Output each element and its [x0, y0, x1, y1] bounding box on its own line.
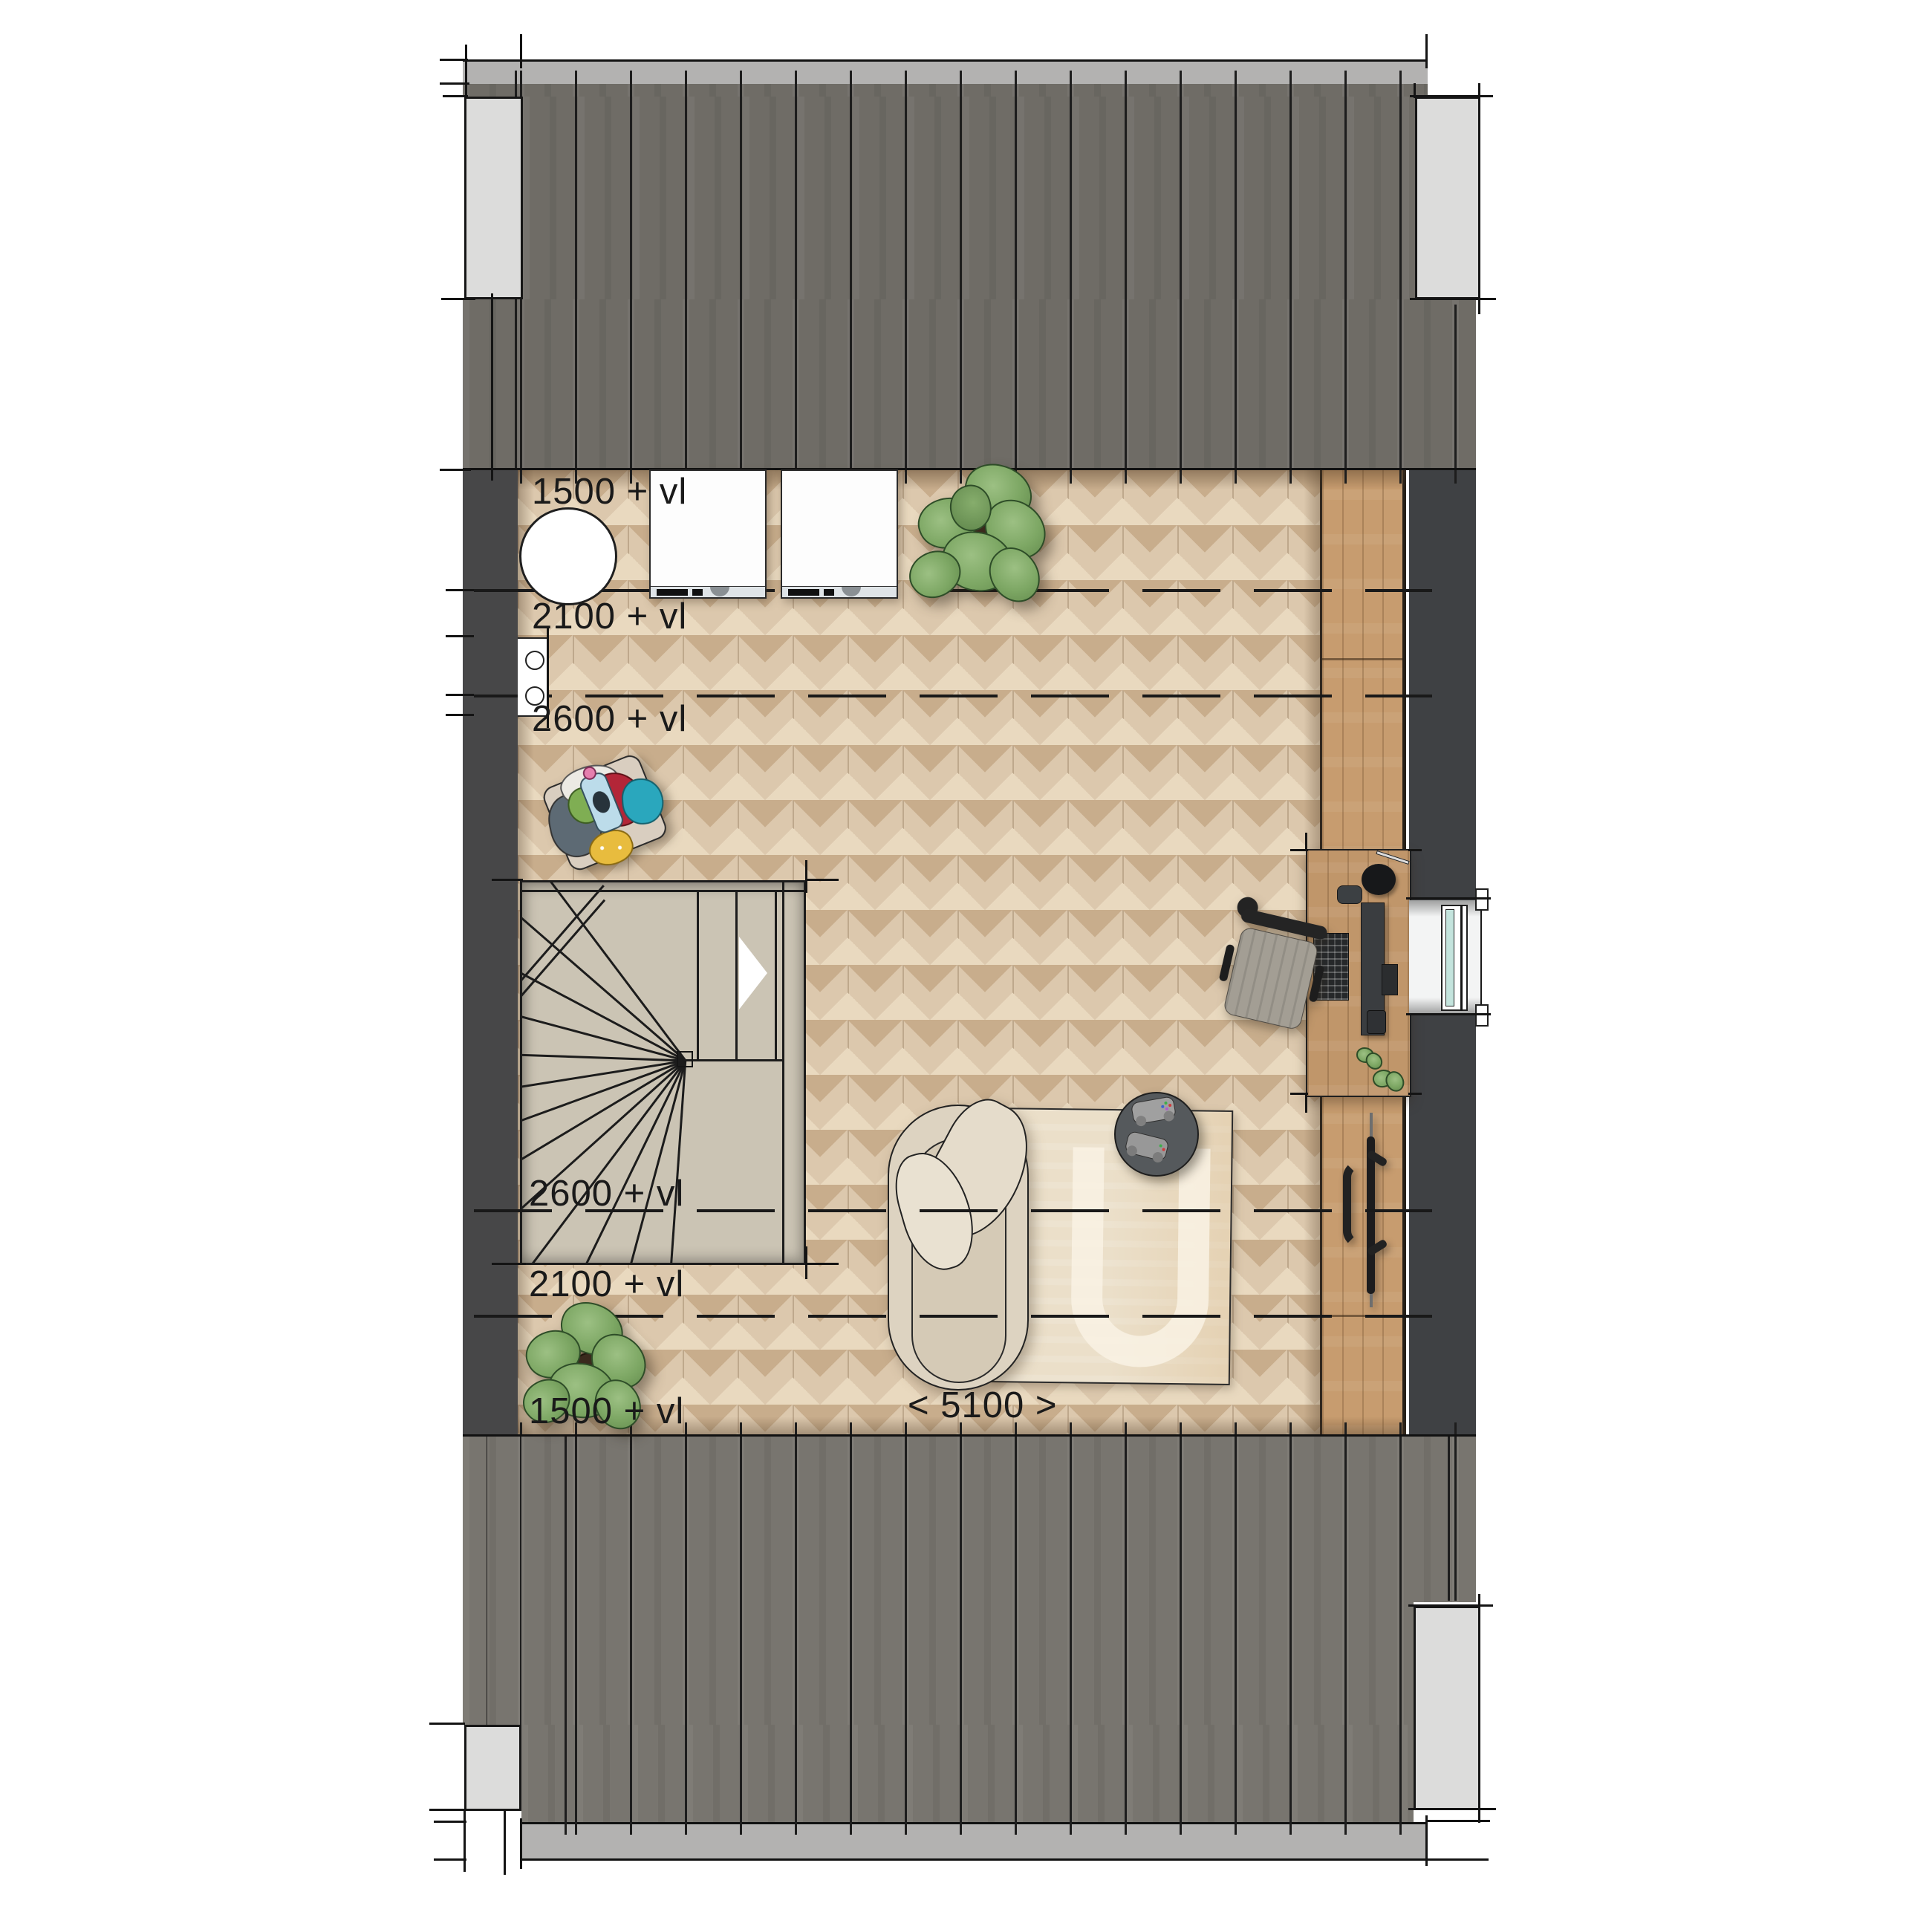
label-height-2100-top: 2100 + vl — [532, 599, 687, 635]
dim-tick — [446, 635, 474, 637]
plant — [912, 468, 1050, 620]
dim-tick — [1478, 1594, 1480, 1609]
desk-lamp — [1362, 864, 1396, 895]
stair-tread — [686, 1059, 784, 1061]
dim-tick — [446, 714, 474, 716]
dim-tick — [806, 879, 839, 881]
dim-tick — [1410, 95, 1493, 97]
headroom-line-2600-top — [474, 695, 1432, 697]
dim-tick — [1414, 83, 1416, 98]
stair-center-post — [677, 1051, 693, 1067]
stair-tread — [775, 891, 777, 1060]
dim-tick — [492, 879, 523, 881]
dim-tick — [1425, 34, 1428, 68]
desk-pad — [1337, 885, 1362, 904]
dim-tick — [520, 1818, 522, 1869]
chimney-top-left — [464, 97, 523, 299]
knee-wall-left — [463, 470, 518, 1436]
roof-seams — [487, 1436, 521, 1725]
side-table — [1114, 1092, 1199, 1177]
controller-button — [1162, 1148, 1165, 1151]
stair-direction-arrow — [739, 937, 767, 1009]
controller-button — [1164, 1102, 1168, 1105]
dim-tick — [1406, 897, 1491, 900]
label-height-1500-top: 1500 + vl — [532, 474, 687, 510]
washer-controls — [782, 586, 897, 597]
dim-tick — [1305, 833, 1307, 850]
lounge-chair — [888, 1105, 1032, 1394]
dim-tick — [1410, 298, 1496, 300]
controller-button — [1161, 1105, 1165, 1108]
dim-tick — [440, 59, 468, 61]
washer-button — [692, 589, 703, 596]
chair-seat — [1223, 926, 1319, 1031]
roof-seams — [521, 1436, 1411, 1835]
chimney-bottom-left — [464, 1725, 521, 1811]
phone — [1367, 1010, 1386, 1034]
rug-pattern — [1070, 1147, 1211, 1367]
dim-tick — [464, 1809, 466, 1872]
dim-tick — [520, 34, 522, 68]
dim-tick — [1478, 296, 1480, 314]
washer-knob — [842, 587, 861, 596]
dim-tick — [434, 1858, 466, 1861]
controller-grip — [1135, 1115, 1147, 1127]
dim-tick — [1478, 83, 1480, 100]
dim-tick — [1305, 1095, 1307, 1113]
controller-grip — [1151, 1151, 1164, 1164]
dim-tick — [1406, 1013, 1491, 1015]
controller-grip — [1125, 1145, 1138, 1157]
desk-plant — [1373, 1067, 1405, 1096]
dim-tick — [1428, 1858, 1489, 1861]
knee-wall-right — [1409, 470, 1476, 900]
roof-seams — [1411, 1436, 1473, 1601]
dim-tick — [440, 82, 469, 85]
chimney-bottom-right — [1414, 1606, 1480, 1810]
stair-right-rim — [782, 882, 784, 1263]
stair-tread — [565, 1061, 686, 1265]
stair-chamfer — [520, 900, 605, 997]
dim-tick — [492, 1263, 526, 1265]
dim-tick — [1408, 849, 1422, 851]
stair-tread — [520, 880, 686, 1061]
washing-machine — [781, 469, 898, 599]
game-controller — [1131, 1096, 1177, 1125]
dim-tick — [805, 1246, 807, 1279]
dim-tick — [465, 45, 467, 98]
washer-knob — [710, 587, 729, 596]
dim-tick — [446, 589, 474, 591]
stair-tread — [520, 880, 686, 1061]
window-glass — [1445, 909, 1454, 1006]
floor-plan-canvas: 1500 + vl 2100 + vl 2600 + vl 2600 + vl … — [0, 0, 1932, 1932]
laundry-tub — [519, 507, 617, 605]
dim-tick — [1426, 1820, 1490, 1822]
window-sill — [1475, 1004, 1489, 1027]
dim-tick — [429, 1723, 465, 1725]
label-height-2600-bottom: 2600 + vl — [529, 1176, 684, 1212]
washer-button — [824, 589, 834, 596]
stair-tread — [520, 1050, 686, 1061]
game-controller — [1124, 1131, 1170, 1162]
counter-joint — [1322, 658, 1402, 660]
washer-display — [788, 589, 819, 596]
window-frame-line — [1460, 905, 1463, 1011]
dim-tick — [1408, 1093, 1422, 1095]
washer-display — [657, 589, 688, 596]
stair-tread — [735, 891, 738, 1060]
dim-tick — [440, 469, 471, 471]
dim-tick — [429, 1809, 466, 1811]
window-sill — [1475, 888, 1489, 911]
dim-tick — [491, 293, 493, 481]
dim-tick — [434, 1821, 466, 1823]
stair-tread — [520, 989, 686, 1061]
dim-tick — [805, 860, 807, 893]
label-height-2600-top: 2600 + vl — [532, 701, 687, 738]
controller-button — [1159, 1144, 1162, 1148]
dim-tick — [441, 298, 475, 300]
stair-top-rim — [522, 890, 804, 892]
dim-tick — [806, 1263, 839, 1265]
vent-pipe — [525, 651, 544, 670]
controller-grip — [1163, 1110, 1175, 1122]
roof-seams — [487, 71, 1426, 469]
washer-controls — [651, 586, 765, 597]
knee-wall-right — [1409, 1015, 1476, 1436]
monitor-stand — [1382, 964, 1398, 995]
radiator-loop — [1343, 1160, 1377, 1248]
label-room-width: < 5100 > — [908, 1388, 1057, 1424]
controller-button — [1168, 1104, 1172, 1108]
dim-tick — [1408, 1808, 1496, 1810]
roof-seams — [1426, 305, 1474, 469]
floor-bottom-edge — [463, 1434, 1476, 1437]
label-height-2100-bottom: 2100 + vl — [529, 1266, 684, 1303]
dim-tick — [443, 95, 468, 97]
stair-tread — [697, 891, 699, 1060]
chimney-top-right — [1415, 97, 1480, 299]
dim-tick — [504, 1811, 506, 1875]
dim-tick — [446, 694, 474, 696]
label-height-1500-bottom: 1500 + vl — [529, 1393, 684, 1430]
